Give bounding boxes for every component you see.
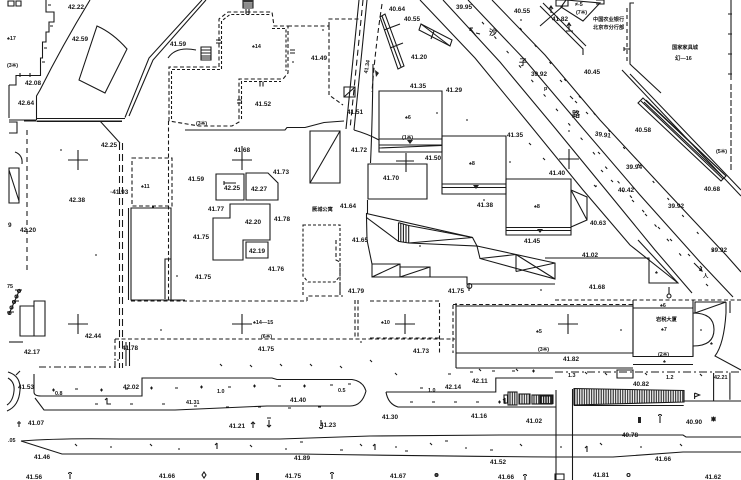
svg-text:国家家具城: 国家家具城 xyxy=(672,43,699,51)
svg-text:0.5: 0.5 xyxy=(338,388,346,394)
svg-text:厥城公寓: 厥城公寓 xyxy=(312,205,333,213)
svg-text:1.2: 1.2 xyxy=(666,375,674,381)
svg-text:(3※): (3※) xyxy=(7,62,18,69)
svg-text:40.90: 40.90 xyxy=(686,419,702,426)
svg-text:41.16: 41.16 xyxy=(471,413,487,420)
svg-text:41.77: 41.77 xyxy=(208,206,224,213)
svg-text:41.52: 41.52 xyxy=(255,101,271,108)
svg-text:岩税大厦: 岩税大厦 xyxy=(655,315,678,323)
svg-text:42.08: 42.08 xyxy=(25,80,41,87)
svg-text:42.14: 42.14 xyxy=(445,384,461,391)
svg-text:42.25: 42.25 xyxy=(101,142,117,149)
svg-text:♠: ♠ xyxy=(655,270,658,276)
svg-text:41.38: 41.38 xyxy=(477,202,493,209)
svg-text:42.59: 42.59 xyxy=(72,36,88,43)
svg-text:41.66: 41.66 xyxy=(655,456,671,463)
svg-text:41.53: 41.53 xyxy=(18,384,34,391)
svg-text:42.11: 42.11 xyxy=(472,378,488,385)
svg-text:41.68: 41.68 xyxy=(589,284,605,291)
svg-text:41.75: 41.75 xyxy=(195,274,211,281)
svg-text:41.73: 41.73 xyxy=(273,169,289,176)
svg-text:75: 75 xyxy=(7,284,13,290)
svg-text:42.44: 42.44 xyxy=(85,333,101,340)
svg-text:40.63: 40.63 xyxy=(590,220,606,227)
svg-text:北京市分行部: 北京市分行部 xyxy=(593,23,625,31)
svg-text:沙: 沙 xyxy=(489,28,497,37)
svg-text:(6※): (6※) xyxy=(261,333,272,340)
svg-text:41.40: 41.40 xyxy=(549,170,565,177)
svg-text:♠5: ♠5 xyxy=(536,329,542,335)
svg-text:41.35: 41.35 xyxy=(410,83,426,90)
svg-text:♠6: ♠6 xyxy=(660,303,666,309)
svg-text:42.27: 42.27 xyxy=(251,186,267,193)
svg-text:1.0: 1.0 xyxy=(217,389,225,395)
svg-text:40.45: 40.45 xyxy=(584,69,600,76)
svg-text:(3※): (3※) xyxy=(538,346,549,353)
svg-text:41.68: 41.68 xyxy=(234,147,250,154)
svg-text:(5※): (5※) xyxy=(716,148,727,155)
svg-text:♠14: ♠14 xyxy=(252,44,261,50)
svg-text:41.30: 41.30 xyxy=(382,414,398,421)
svg-text:41.46: 41.46 xyxy=(34,454,50,461)
svg-text:40.58: 40.58 xyxy=(635,127,651,134)
svg-text:42.22: 42.22 xyxy=(68,4,84,11)
svg-text:41.75: 41.75 xyxy=(448,288,464,295)
svg-text:41.64: 41.64 xyxy=(340,203,356,210)
svg-text:幻—16: 幻—16 xyxy=(675,54,692,62)
svg-text:42.20: 42.20 xyxy=(20,227,36,234)
svg-text:40.64: 40.64 xyxy=(389,6,405,13)
svg-text:39.95: 39.95 xyxy=(456,4,472,11)
svg-text:40.68: 40.68 xyxy=(704,186,720,193)
svg-text:41.52: 41.52 xyxy=(490,459,506,466)
svg-text:40.82: 40.82 xyxy=(633,381,649,388)
svg-text:中国农业银行: 中国农业银行 xyxy=(593,15,625,23)
svg-text:♠7: ♠7 xyxy=(661,327,667,333)
svg-text:41.40: 41.40 xyxy=(290,397,306,404)
svg-text:40.55: 40.55 xyxy=(404,16,420,23)
svg-text:41.67: 41.67 xyxy=(390,473,406,480)
svg-text:41.62: 41.62 xyxy=(705,474,721,480)
svg-text:42.25: 42.25 xyxy=(224,185,240,192)
svg-text:42.21: 42.21 xyxy=(714,375,728,381)
svg-text:42.17: 42.17 xyxy=(24,349,40,356)
svg-text:路: 路 xyxy=(572,109,581,119)
svg-text:41.81: 41.81 xyxy=(593,472,609,479)
svg-text:41.35: 41.35 xyxy=(507,132,523,139)
svg-text:(2※): (2※) xyxy=(658,351,669,358)
svg-text:41.72: 41.72 xyxy=(351,147,367,154)
svg-text:41.75: 41.75 xyxy=(258,346,274,353)
svg-text:(1※): (1※) xyxy=(402,134,413,141)
svg-text:40.78: 40.78 xyxy=(622,432,638,439)
svg-text:41.78: 41.78 xyxy=(274,216,290,223)
svg-text:40.42: 40.42 xyxy=(618,187,634,194)
svg-text:子: 子 xyxy=(519,58,527,67)
svg-text:(3※): (3※) xyxy=(196,120,207,127)
svg-text:39.94: 39.94 xyxy=(626,164,642,171)
svg-text:1.3: 1.3 xyxy=(568,373,576,379)
svg-text:41.59: 41.59 xyxy=(188,176,204,183)
svg-text:0.8: 0.8 xyxy=(55,391,63,397)
svg-text:41.70: 41.70 xyxy=(383,175,399,182)
svg-text:♠: ♠ xyxy=(663,359,666,365)
svg-text:♠: ♠ xyxy=(710,341,713,347)
svg-text:(7※): (7※) xyxy=(576,9,587,16)
svg-text:.05: .05 xyxy=(8,438,16,444)
svg-text:1.0: 1.0 xyxy=(428,388,436,394)
svg-text:♠11: ♠11 xyxy=(141,184,150,190)
svg-text:41.76: 41.76 xyxy=(268,266,284,273)
svg-text:41.07: 41.07 xyxy=(28,420,44,427)
svg-text:41.73: 41.73 xyxy=(413,348,429,355)
svg-text:41.75: 41.75 xyxy=(285,473,301,480)
svg-text:♠14—15: ♠14—15 xyxy=(253,320,273,326)
svg-text:42.02: 42.02 xyxy=(123,384,139,391)
svg-text:♠17: ♠17 xyxy=(7,36,16,42)
svg-text:41.29: 41.29 xyxy=(446,87,462,94)
svg-text:41.78: 41.78 xyxy=(122,345,138,352)
svg-text:42.64: 42.64 xyxy=(18,100,34,107)
svg-text:♠10: ♠10 xyxy=(381,320,390,326)
svg-text:41.02: 41.02 xyxy=(582,252,598,259)
svg-text:42.20: 42.20 xyxy=(245,219,261,226)
svg-text:9: 9 xyxy=(8,222,12,229)
svg-text:41.66: 41.66 xyxy=(159,473,175,480)
svg-text:41.45: 41.45 xyxy=(524,238,540,245)
svg-text:41.21: 41.21 xyxy=(229,423,245,430)
svg-text:41.51: 41.51 xyxy=(347,109,363,116)
svg-text:41.89: 41.89 xyxy=(294,455,310,462)
svg-text:41.56: 41.56 xyxy=(26,474,42,480)
svg-text:41.82: 41.82 xyxy=(563,356,579,363)
svg-text:41.59: 41.59 xyxy=(170,41,186,48)
svg-text:40.55: 40.55 xyxy=(514,8,530,15)
svg-text:41.65: 41.65 xyxy=(352,237,368,244)
svg-text:41.75: 41.75 xyxy=(193,234,209,241)
svg-text:41.20: 41.20 xyxy=(411,54,427,61)
svg-text:41.50: 41.50 xyxy=(425,155,441,162)
svg-text:41.79: 41.79 xyxy=(348,288,364,295)
svg-text:42.19: 42.19 xyxy=(249,248,265,255)
svg-text:42.38: 42.38 xyxy=(69,197,85,204)
svg-text:41.49: 41.49 xyxy=(311,55,327,62)
svg-text:39.92: 39.92 xyxy=(668,203,684,210)
svg-text:♠6: ♠6 xyxy=(405,115,411,121)
svg-text:41.02: 41.02 xyxy=(526,418,542,425)
svg-text:♠8: ♠8 xyxy=(534,204,540,210)
svg-text:41.31: 41.31 xyxy=(186,400,200,406)
svg-text:41.66: 41.66 xyxy=(498,474,514,480)
svg-text:人: 人 xyxy=(703,272,709,280)
svg-text:♠8: ♠8 xyxy=(469,161,475,167)
svg-text:≠-5: ≠-5 xyxy=(575,2,583,8)
svg-text:39.92: 39.92 xyxy=(711,247,727,254)
